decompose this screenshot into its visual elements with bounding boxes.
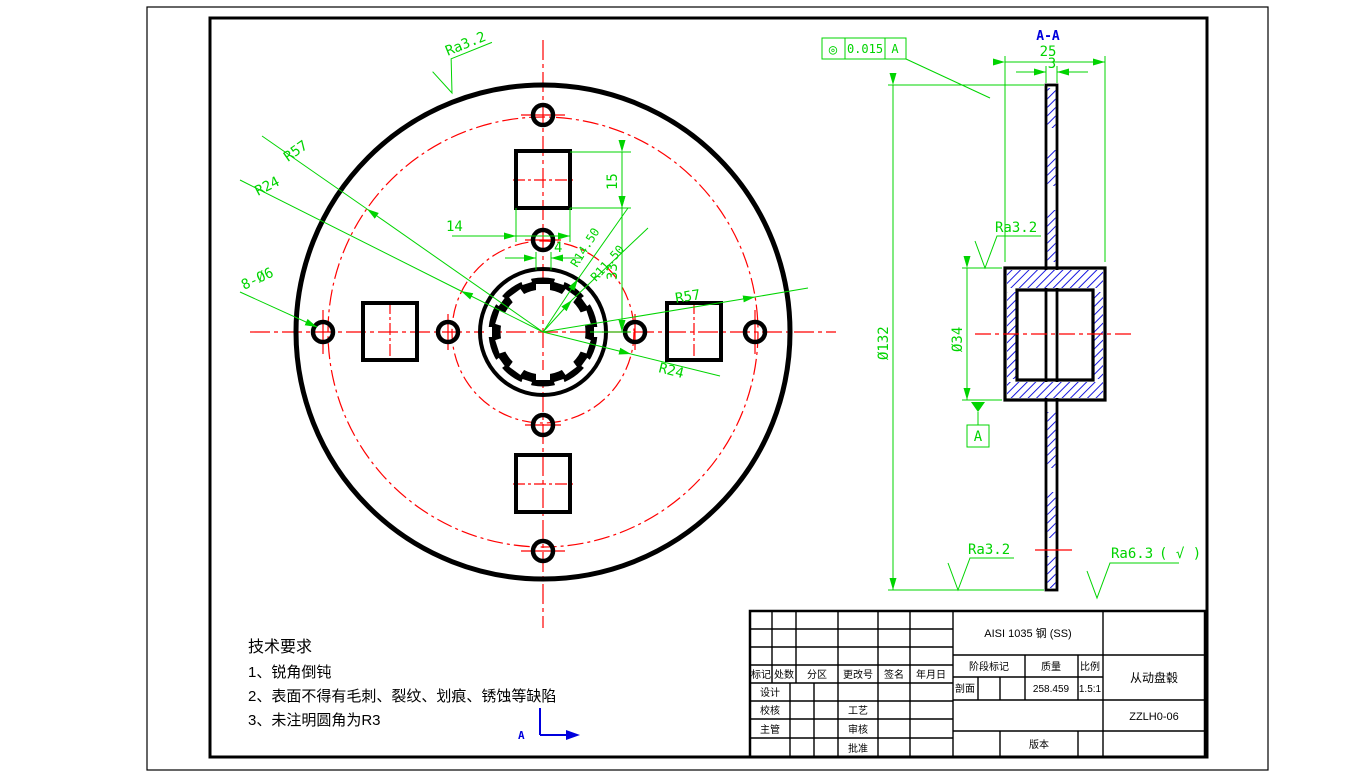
tb-scale-value: 1.5:1 xyxy=(1079,684,1102,695)
dim-14-label: 14 xyxy=(446,219,463,235)
tb-check-label: 校核 xyxy=(760,704,780,717)
ra-web-label: Ra3.2 xyxy=(968,542,1010,558)
tb-version-label: 版本 xyxy=(1029,738,1049,751)
ra-general-label: Ra6.3 xyxy=(1111,546,1153,562)
gtol-value: 0.015 xyxy=(847,42,883,56)
datum-label: A xyxy=(974,429,983,445)
cad-drawing-canvas: Ra3.2 R57 R24 8-Ø6 R57 R24 R14.50 xyxy=(0,0,1369,776)
tb-stagemark-label: 阶段标记 xyxy=(969,660,1009,673)
tech-req-title: 技术要求 xyxy=(248,638,312,656)
tb-drawing-number: ZZLH0-06 xyxy=(1129,711,1179,723)
tb-approve-label: 批准 xyxy=(848,742,868,755)
ra-general-note: ( √ ) xyxy=(1159,546,1201,562)
tech-req-item: 1、锐角倒钝 xyxy=(248,664,331,681)
axis-label: A xyxy=(518,729,525,742)
tb-mass-label: 质量 xyxy=(1041,661,1061,673)
tb-material: AISI 1035 钢 (SS) xyxy=(984,627,1071,640)
gtol-datum: A xyxy=(891,42,899,56)
tech-req-item: 3、未注明圆角为R3 xyxy=(248,712,381,729)
dim-4-label: 4 xyxy=(554,240,562,256)
concentricity-icon: ◎ xyxy=(829,42,838,58)
dim-3-label: 3 xyxy=(1048,56,1056,72)
tb-supervise-label: 主管 xyxy=(760,723,780,736)
tb-mass-value: 258.459 xyxy=(1033,684,1070,695)
tech-req-item: 2、表面不得有毛刺、裂纹、划痕、锈蚀等缺陷 xyxy=(248,687,556,705)
tb-design-label: 设计 xyxy=(760,686,780,699)
dim-33-label: 33 xyxy=(605,263,621,280)
tb-zone-label: 分区 xyxy=(807,669,827,681)
tb-process-label: 工艺 xyxy=(848,705,868,717)
ra-hub-label: Ra3.2 xyxy=(995,220,1037,236)
tb-signature-label: 签名 xyxy=(884,668,904,681)
tb-section-cell: 剖面 xyxy=(955,682,975,695)
dim-d132-label: Ø132 xyxy=(876,326,892,360)
tb-changeno-label: 更改号 xyxy=(843,668,873,681)
tb-count-label: 处数 xyxy=(774,668,794,681)
dim-d34-label: Ø34 xyxy=(950,327,966,352)
section-label: A-A xyxy=(1036,29,1060,44)
tb-scale-label: 比例 xyxy=(1080,660,1100,673)
dim-15-label: 15 xyxy=(605,173,621,190)
tb-part-name: 从动盘毂 xyxy=(1130,670,1178,685)
tb-date-label: 年月日 xyxy=(916,668,946,681)
tb-mark-label: 标记 xyxy=(751,669,771,681)
tb-review-label: 审核 xyxy=(848,723,868,736)
